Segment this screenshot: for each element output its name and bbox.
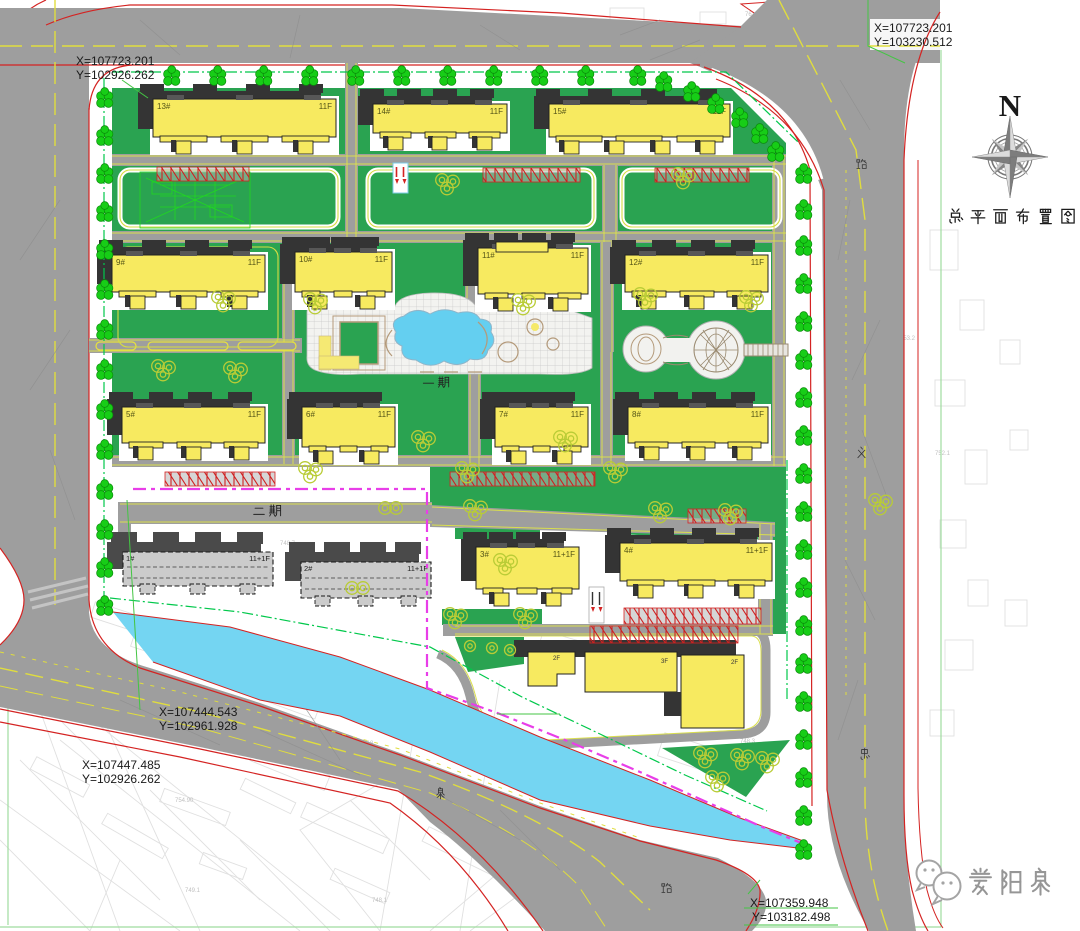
svg-text:11F: 11F: [490, 107, 503, 116]
svg-text:10#: 10#: [299, 255, 313, 264]
svg-text:6#: 6#: [306, 410, 315, 419]
svg-text:9#: 9#: [116, 258, 125, 267]
svg-text:11F: 11F: [571, 251, 584, 260]
svg-text:2#: 2#: [304, 564, 313, 573]
svg-text:752.1: 752.1: [935, 451, 951, 457]
svg-text:11+1F: 11+1F: [553, 550, 575, 559]
svg-text:Y=102926.262: Y=102926.262: [82, 772, 161, 786]
svg-text:Y=102961.928: Y=102961.928: [159, 719, 238, 733]
svg-text:X=107359.948: X=107359.948: [750, 896, 829, 910]
svg-text:754.90: 754.90: [175, 798, 194, 804]
svg-text:7#: 7#: [499, 410, 508, 419]
svg-text:11F: 11F: [751, 410, 764, 419]
svg-text:11+1F: 11+1F: [407, 564, 428, 573]
svg-text:X=107444.543: X=107444.543: [159, 705, 238, 719]
svg-text:11F: 11F: [319, 102, 332, 111]
svg-text:2F: 2F: [553, 656, 560, 662]
svg-text:14#: 14#: [377, 107, 391, 116]
svg-text:4#: 4#: [624, 546, 633, 555]
svg-text:11+1F: 11+1F: [249, 554, 270, 563]
svg-text:Y=102926.262: Y=102926.262: [76, 68, 155, 82]
svg-text:5#: 5#: [126, 410, 135, 419]
svg-text:3F: 3F: [661, 659, 668, 665]
svg-text:3#: 3#: [480, 550, 489, 559]
svg-text:748.1: 748.1: [372, 898, 388, 904]
svg-text:749.1: 749.1: [185, 888, 201, 894]
svg-text:13#: 13#: [157, 102, 171, 111]
svg-text:X=107723.201: X=107723.201: [76, 54, 155, 68]
svg-text:11F: 11F: [375, 255, 388, 264]
svg-text:11F: 11F: [571, 410, 584, 419]
svg-text:Y=103230.512: Y=103230.512: [874, 35, 953, 49]
svg-text:15#: 15#: [553, 107, 567, 116]
svg-text:11F: 11F: [248, 258, 261, 267]
svg-text:11F: 11F: [248, 410, 261, 419]
svg-text:Y=103182.498: Y=103182.498: [752, 910, 831, 924]
svg-text:11F: 11F: [751, 258, 764, 267]
svg-text:11F: 11F: [378, 410, 391, 419]
svg-text:X=107723.201: X=107723.201: [874, 21, 953, 35]
svg-text:2F: 2F: [731, 660, 738, 666]
svg-text:11+1F: 11+1F: [746, 546, 768, 555]
svg-text:12#: 12#: [629, 258, 643, 267]
svg-text:X=107447.485: X=107447.485: [82, 758, 161, 772]
svg-text:11#: 11#: [482, 251, 495, 260]
svg-text:8#: 8#: [632, 410, 641, 419]
